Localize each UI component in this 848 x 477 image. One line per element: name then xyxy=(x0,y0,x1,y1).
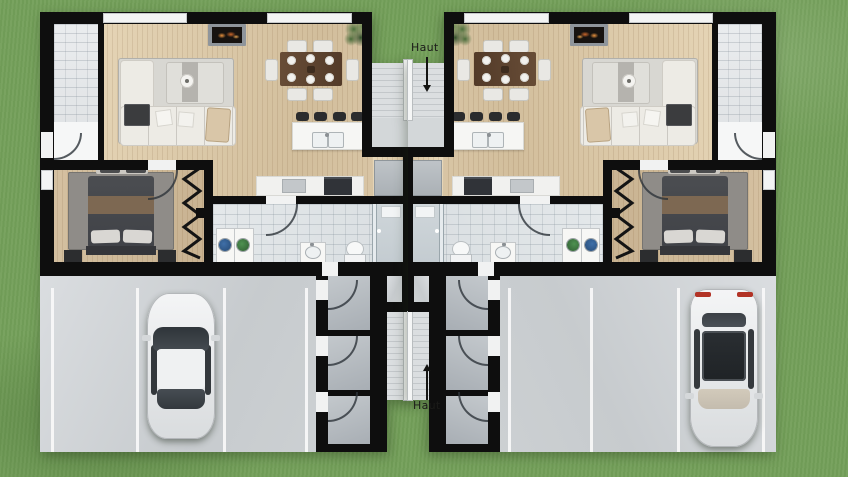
stairwell-bottom-top-wall xyxy=(408,302,429,312)
shower-door-handle xyxy=(377,229,381,233)
sofa-pillow xyxy=(177,111,194,127)
car-sunroof xyxy=(702,331,746,381)
window-bedroom xyxy=(763,170,775,190)
car-windshield xyxy=(153,327,209,351)
nightstand xyxy=(158,250,176,262)
bar-stool xyxy=(314,112,327,121)
terrace-wall xyxy=(712,24,718,160)
dryer-door xyxy=(567,239,579,251)
storage-door-opening xyxy=(488,392,500,412)
stairwell-wall-bottom xyxy=(362,147,408,157)
car-top-view-left xyxy=(147,293,215,439)
dining-plate xyxy=(306,75,315,84)
nightstand xyxy=(64,250,82,262)
stairs-up-label-bottom: Haut xyxy=(413,399,441,412)
bed-pillow xyxy=(696,229,725,243)
pantry-closet xyxy=(412,160,442,196)
sofa-side-tray xyxy=(666,104,692,126)
stairs-up-arrow-bottom-head xyxy=(423,364,431,371)
dryer-door xyxy=(237,239,249,251)
dining-plate xyxy=(482,56,491,65)
coffee-table-plate-dot xyxy=(185,79,189,83)
window-top-dining xyxy=(267,13,352,23)
bedroom-bath-wall xyxy=(204,160,213,262)
terrace-wall xyxy=(98,24,104,160)
car-windshield xyxy=(698,389,750,409)
floor-plan-scene: Haut Haut xyxy=(0,0,848,477)
shower-glass-panel xyxy=(440,204,443,262)
fireplace-flames xyxy=(576,29,602,41)
stairs-bottom-run xyxy=(387,312,404,400)
stairs-up-arrow-top-line xyxy=(426,57,428,86)
parking-line xyxy=(136,288,139,452)
car-rear-window xyxy=(157,389,205,409)
dining-plate xyxy=(520,56,529,65)
shower-shelf xyxy=(381,206,401,218)
garage-passage xyxy=(387,276,402,302)
stairs-top-run xyxy=(372,63,404,118)
storage-column-wall-inner xyxy=(429,276,446,452)
stairs-up-arrow-top-head xyxy=(423,85,431,92)
car-side-window xyxy=(748,329,754,389)
vanity-sink xyxy=(495,246,511,259)
storage-column-wall-outer xyxy=(488,276,500,452)
parking-line xyxy=(677,288,680,452)
car-taillight xyxy=(695,292,711,297)
bedroom-wall xyxy=(40,160,204,170)
party-wall-lower xyxy=(408,157,413,262)
dining-plate xyxy=(501,54,510,63)
entry-door-opening xyxy=(41,132,53,158)
dining-chair xyxy=(346,59,359,81)
bar-stool xyxy=(296,112,309,121)
nightstand xyxy=(734,250,752,262)
car-mirror xyxy=(142,335,151,341)
bathroom-door-opening xyxy=(266,196,296,204)
garage-passage xyxy=(414,276,429,302)
nightstand xyxy=(640,250,658,262)
fireplace-flames xyxy=(214,29,240,41)
bed-pillow xyxy=(91,229,120,243)
stairwell-wall xyxy=(444,12,454,157)
window-top-dining xyxy=(464,13,549,23)
cooktop xyxy=(282,179,306,193)
sink-faucet xyxy=(325,133,329,137)
washer-door xyxy=(585,239,597,251)
sofa-side-tray xyxy=(124,104,150,126)
dining-chair xyxy=(265,59,278,81)
shower-shelf xyxy=(415,206,435,218)
parking-line xyxy=(590,288,593,452)
bathroom-door-opening xyxy=(520,196,550,204)
mid-wall xyxy=(40,262,408,276)
stairs-top-landing xyxy=(408,118,444,147)
sink-faucet xyxy=(487,133,491,137)
vanity-faucet xyxy=(502,243,506,246)
storage-column-wall-outer xyxy=(316,276,328,452)
storage-column-wall-inner xyxy=(370,276,387,452)
parking-line xyxy=(508,288,511,452)
parking-line xyxy=(223,288,226,452)
car-side-window xyxy=(205,345,211,395)
stairs-bottom-railing xyxy=(408,312,412,400)
sofa-pillow xyxy=(155,109,173,127)
car-mirror xyxy=(211,335,220,341)
car-rear-window xyxy=(702,313,746,327)
storage-wall-bottom xyxy=(429,444,500,452)
parking-line xyxy=(51,288,54,452)
dining-plate xyxy=(287,73,296,82)
mid-wall-opening xyxy=(322,262,338,276)
car-top-view-right xyxy=(690,289,758,447)
dining-chair xyxy=(287,88,307,101)
window-top-living xyxy=(103,13,187,23)
stove xyxy=(464,177,492,195)
parking-line xyxy=(305,288,308,452)
dining-centerpiece xyxy=(501,66,509,73)
vanity-sink xyxy=(305,246,321,259)
bed-pillow xyxy=(664,229,693,243)
dining-plate xyxy=(482,73,491,82)
bar-stool xyxy=(489,112,502,121)
storage-door-opening xyxy=(316,392,328,412)
parking-line xyxy=(762,288,765,452)
bedroom-bath-wall xyxy=(603,160,612,262)
bed-throw-blanket xyxy=(662,196,728,214)
storage-door-opening xyxy=(488,336,500,356)
stairs-top-railing xyxy=(408,60,412,120)
mid-wall xyxy=(408,262,776,276)
car-side-window xyxy=(694,329,700,389)
dining-plate xyxy=(287,56,296,65)
car-roof xyxy=(157,349,205,389)
bar-stool xyxy=(333,112,346,121)
island-sink xyxy=(328,132,344,148)
stairwell-wall-bottom xyxy=(408,147,454,157)
storage-door-opening xyxy=(316,336,328,356)
bar-stool xyxy=(507,112,520,121)
coffee-table-plate-dot xyxy=(627,79,631,83)
shower-glass-panel xyxy=(373,204,376,262)
stairwell-wall xyxy=(362,12,372,157)
dining-chair xyxy=(538,59,551,81)
dining-plate xyxy=(325,73,334,82)
sofa-blanket xyxy=(205,107,231,143)
bathroom-wall xyxy=(413,196,603,204)
storage-wall-bottom xyxy=(316,444,387,452)
stairs-top-landing xyxy=(372,118,408,147)
storage-door-opening xyxy=(316,280,328,300)
entry-door-opening xyxy=(763,132,775,158)
sofa-pillow xyxy=(621,111,638,127)
stairs-up-arrow-bottom-line xyxy=(426,371,428,400)
bed-pillow xyxy=(123,229,152,243)
bathroom-wall xyxy=(213,196,403,204)
dining-chair xyxy=(457,59,470,81)
bedroom-door-opening xyxy=(640,160,668,170)
party-wall-stub xyxy=(408,276,414,302)
stove xyxy=(324,177,352,195)
island-sink xyxy=(472,132,488,148)
mid-wall-opening xyxy=(478,262,494,276)
car-mirror xyxy=(754,393,763,399)
sofa-pillow xyxy=(643,109,661,127)
dining-plate xyxy=(520,73,529,82)
car-mirror xyxy=(685,393,694,399)
dining-plate xyxy=(325,56,334,65)
dining-chair xyxy=(509,88,529,101)
bar-stool xyxy=(470,112,483,121)
dining-plate xyxy=(501,75,510,84)
dining-centerpiece xyxy=(307,66,315,73)
shower-door-handle xyxy=(435,229,439,233)
dining-plate xyxy=(306,54,315,63)
bedroom-door-opening xyxy=(148,160,176,170)
terrace xyxy=(54,24,98,122)
sofa-blanket xyxy=(585,107,611,143)
dining-chair xyxy=(483,88,503,101)
bed-throw-blanket xyxy=(88,196,154,214)
window-top-living xyxy=(629,13,713,23)
vanity-faucet xyxy=(310,243,314,246)
pantry-closet xyxy=(374,160,404,196)
stairwell-bottom-top-wall xyxy=(387,302,408,312)
car-taillight xyxy=(737,292,753,297)
window-bedroom xyxy=(41,170,53,190)
stairs-up-label-top: Haut xyxy=(411,41,439,54)
dining-chair xyxy=(313,88,333,101)
bed-headboard xyxy=(660,246,730,255)
washer-door xyxy=(219,239,231,251)
bedroom-wall xyxy=(612,160,776,170)
storage-door-opening xyxy=(488,280,500,300)
terrace xyxy=(718,24,762,122)
cooktop xyxy=(510,179,534,193)
bed-headboard xyxy=(86,246,156,255)
